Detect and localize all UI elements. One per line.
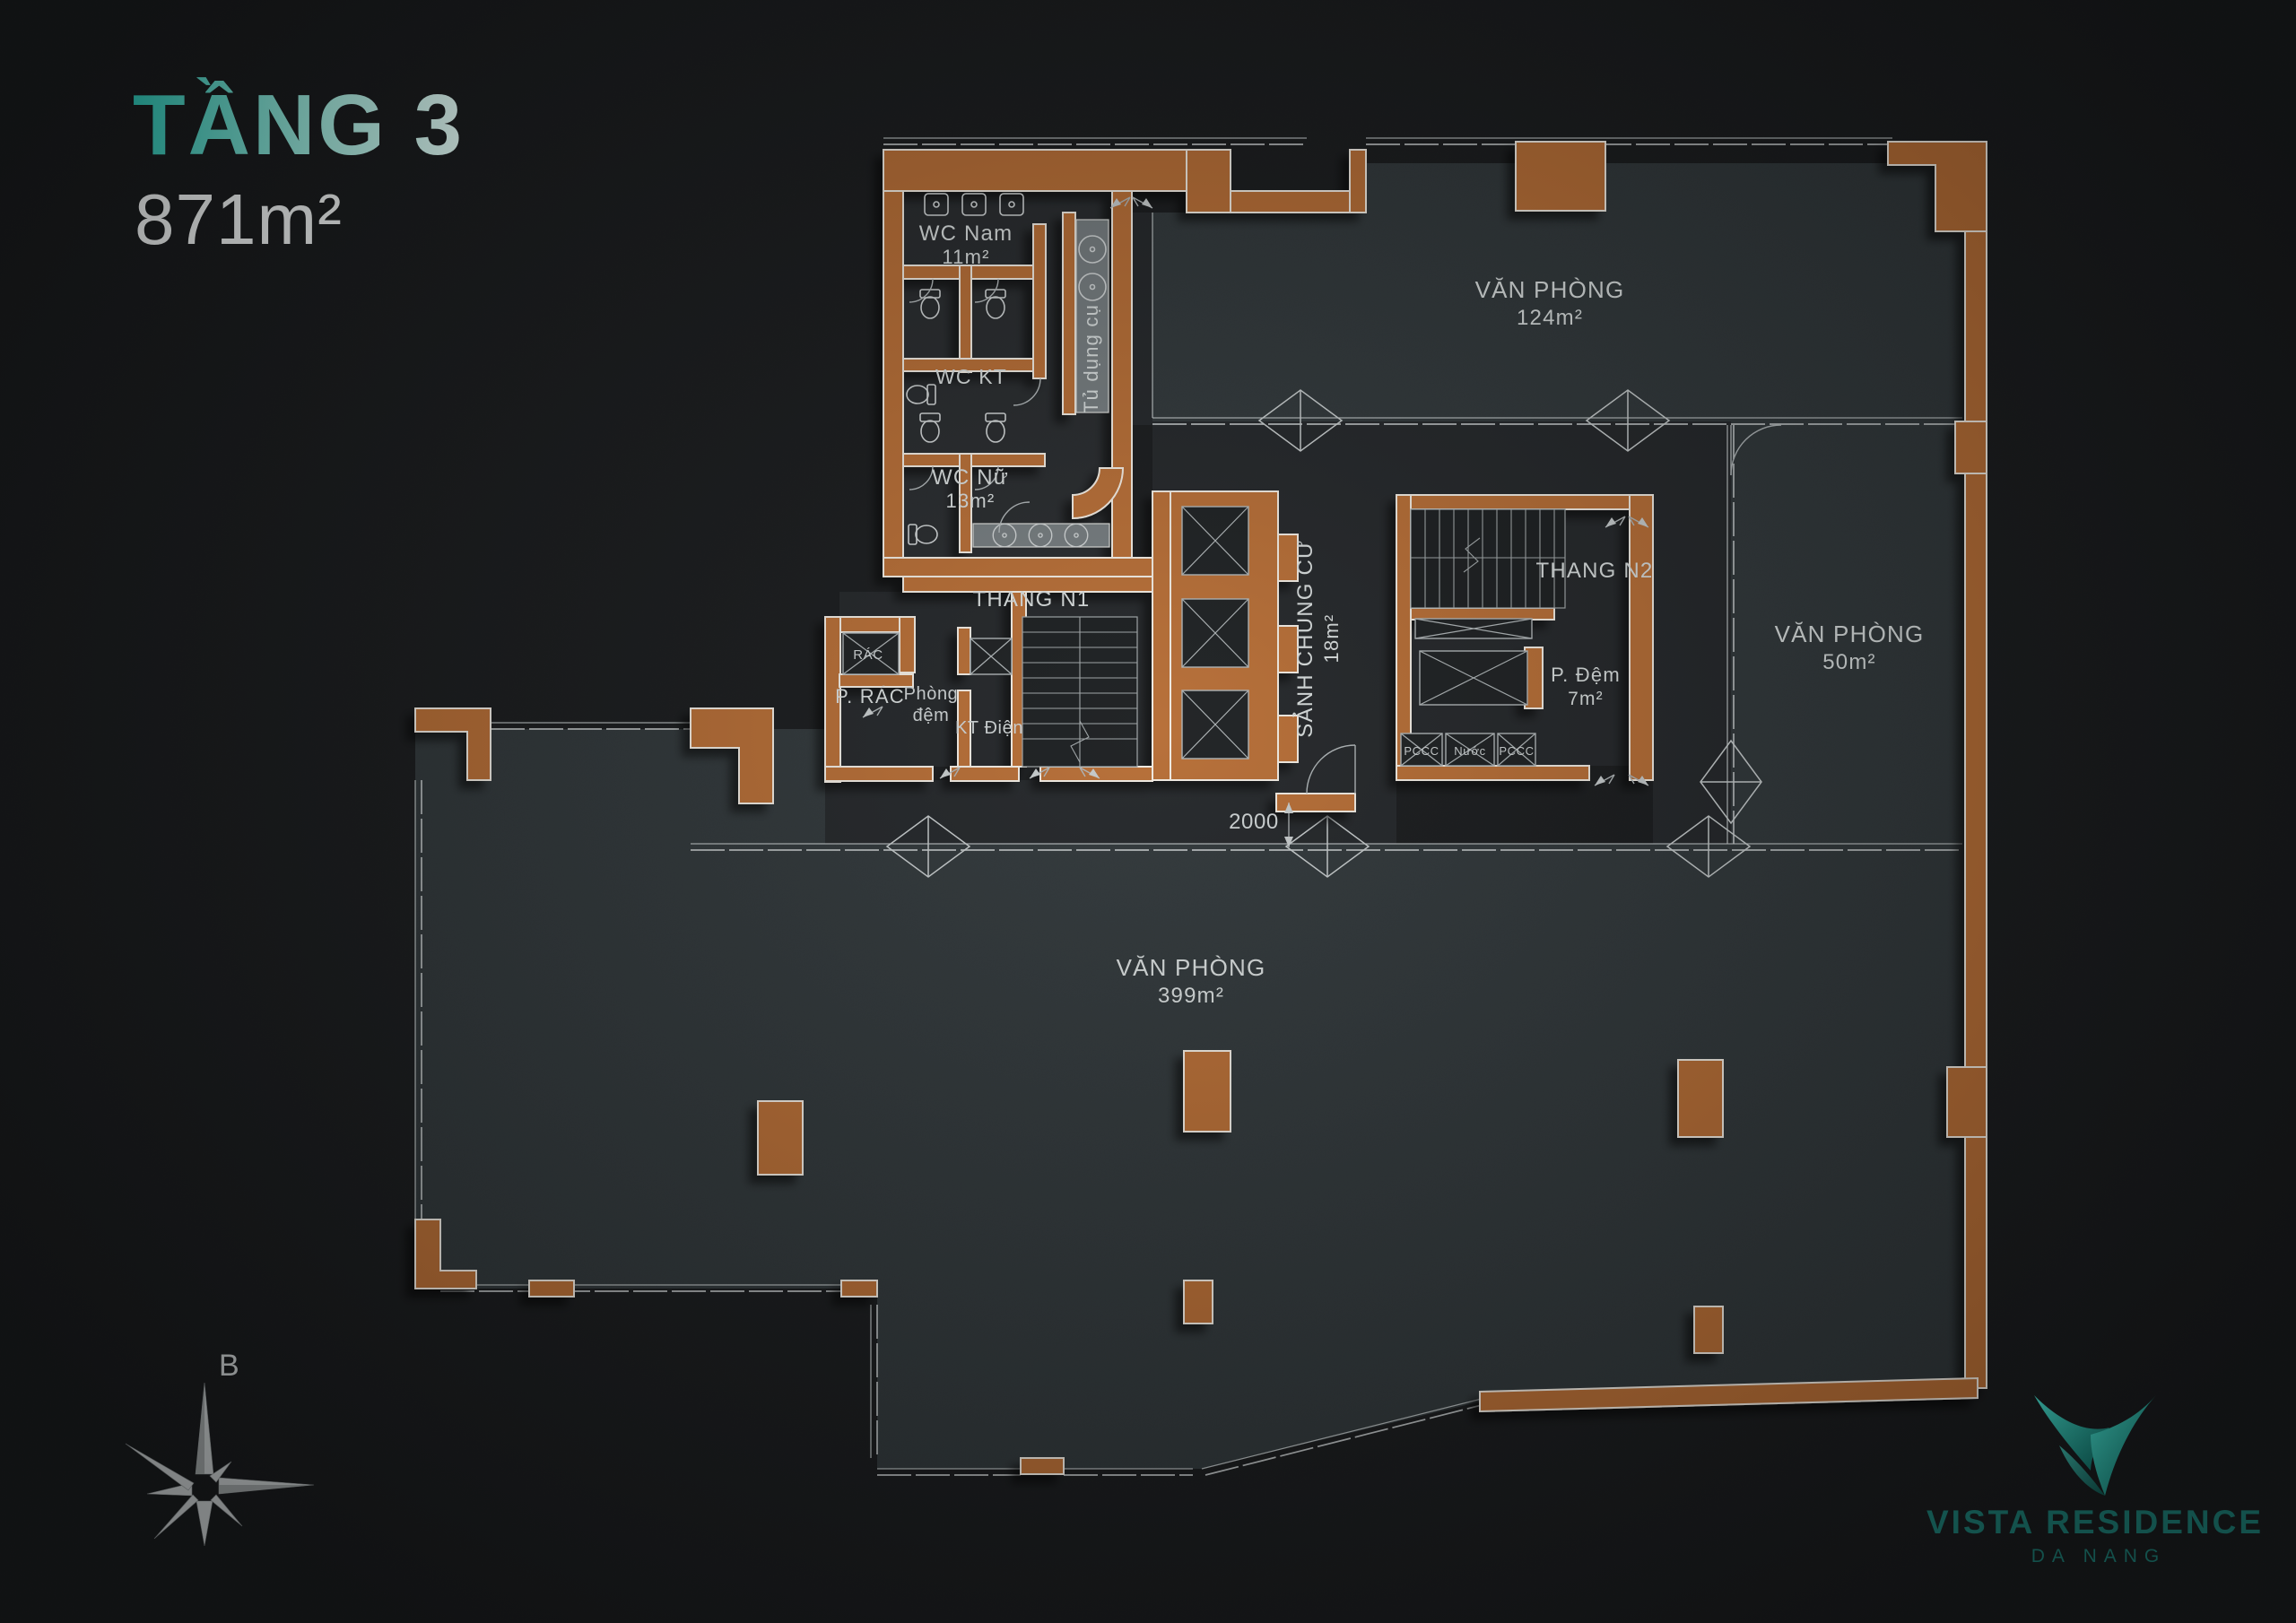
label-p-dem: P. Đệm xyxy=(1551,664,1621,686)
label-vp-124: VĂN PHÒNG xyxy=(1475,276,1625,303)
label-vp-50-area: 50m² xyxy=(1822,650,1875,674)
label-wc-nam: WC Nam xyxy=(919,221,1013,246)
label-thang-n2: THANG N2 xyxy=(1536,559,1654,583)
service-shaft xyxy=(1415,619,1532,638)
label-p-dem-area: 7m² xyxy=(1568,689,1604,709)
elevator-shaft xyxy=(1182,690,1248,759)
page-area: 871m² xyxy=(135,179,343,259)
label-nuoc: Nước xyxy=(1454,744,1486,758)
label-thang-n1: THANG N1 xyxy=(973,587,1091,612)
label-sanh-area: 18m² xyxy=(1320,614,1343,664)
label-vp-50: VĂN PHÒNG xyxy=(1775,621,1925,647)
stairs-n1 xyxy=(1022,617,1137,767)
page-title: TẦNG 3 xyxy=(133,76,465,173)
label-wc-kt: WC KT xyxy=(935,365,1007,388)
label-rac: RÁC xyxy=(853,647,883,663)
kt-shaft xyxy=(970,638,1012,674)
label-vp-399-area: 399m² xyxy=(1158,984,1224,1008)
service-elevator xyxy=(1420,651,1527,705)
floorplan-page: 2000 WC Nam 11m² WC KT Tủ dụng cụ WC Nữ … xyxy=(0,0,2296,1623)
label-vp-124-area: 124m² xyxy=(1517,306,1583,330)
label-vp-399: VĂN PHÒNG xyxy=(1117,954,1266,981)
label-wc-nu: WC Nữ xyxy=(932,465,1009,490)
label-phong-dem-1: Phòng xyxy=(904,684,959,704)
label-wc-nu-area: 13m² xyxy=(946,490,996,512)
label-pccc-left: PCCC xyxy=(1404,744,1439,758)
elevator-shaft xyxy=(1182,599,1248,667)
dimension-label: 2000 xyxy=(1229,810,1279,834)
label-p-rac: P. RÁC xyxy=(835,685,905,707)
brand-location: DA NANG xyxy=(2031,1546,2167,1567)
label-kt-dien: KT Điện xyxy=(955,718,1023,738)
compass-north-label: B xyxy=(219,1349,239,1383)
label-wc-nam-area: 11m² xyxy=(942,246,989,268)
label-phong-dem-2: đệm xyxy=(913,706,950,725)
brand-name: VISTA RESIDENCE xyxy=(1926,1504,2264,1541)
elevator-shaft xyxy=(1182,507,1248,575)
label-pccc-right: PCCC xyxy=(1499,744,1534,758)
floorplan-svg: 2000 WC Nam 11m² WC KT Tủ dụng cụ WC Nữ … xyxy=(0,0,2296,1623)
label-sanh-chung-cu: SẢNH CHUNG CƯ xyxy=(1291,539,1318,737)
label-tu-dung-cu: Tủ dụng cụ xyxy=(1080,304,1102,413)
